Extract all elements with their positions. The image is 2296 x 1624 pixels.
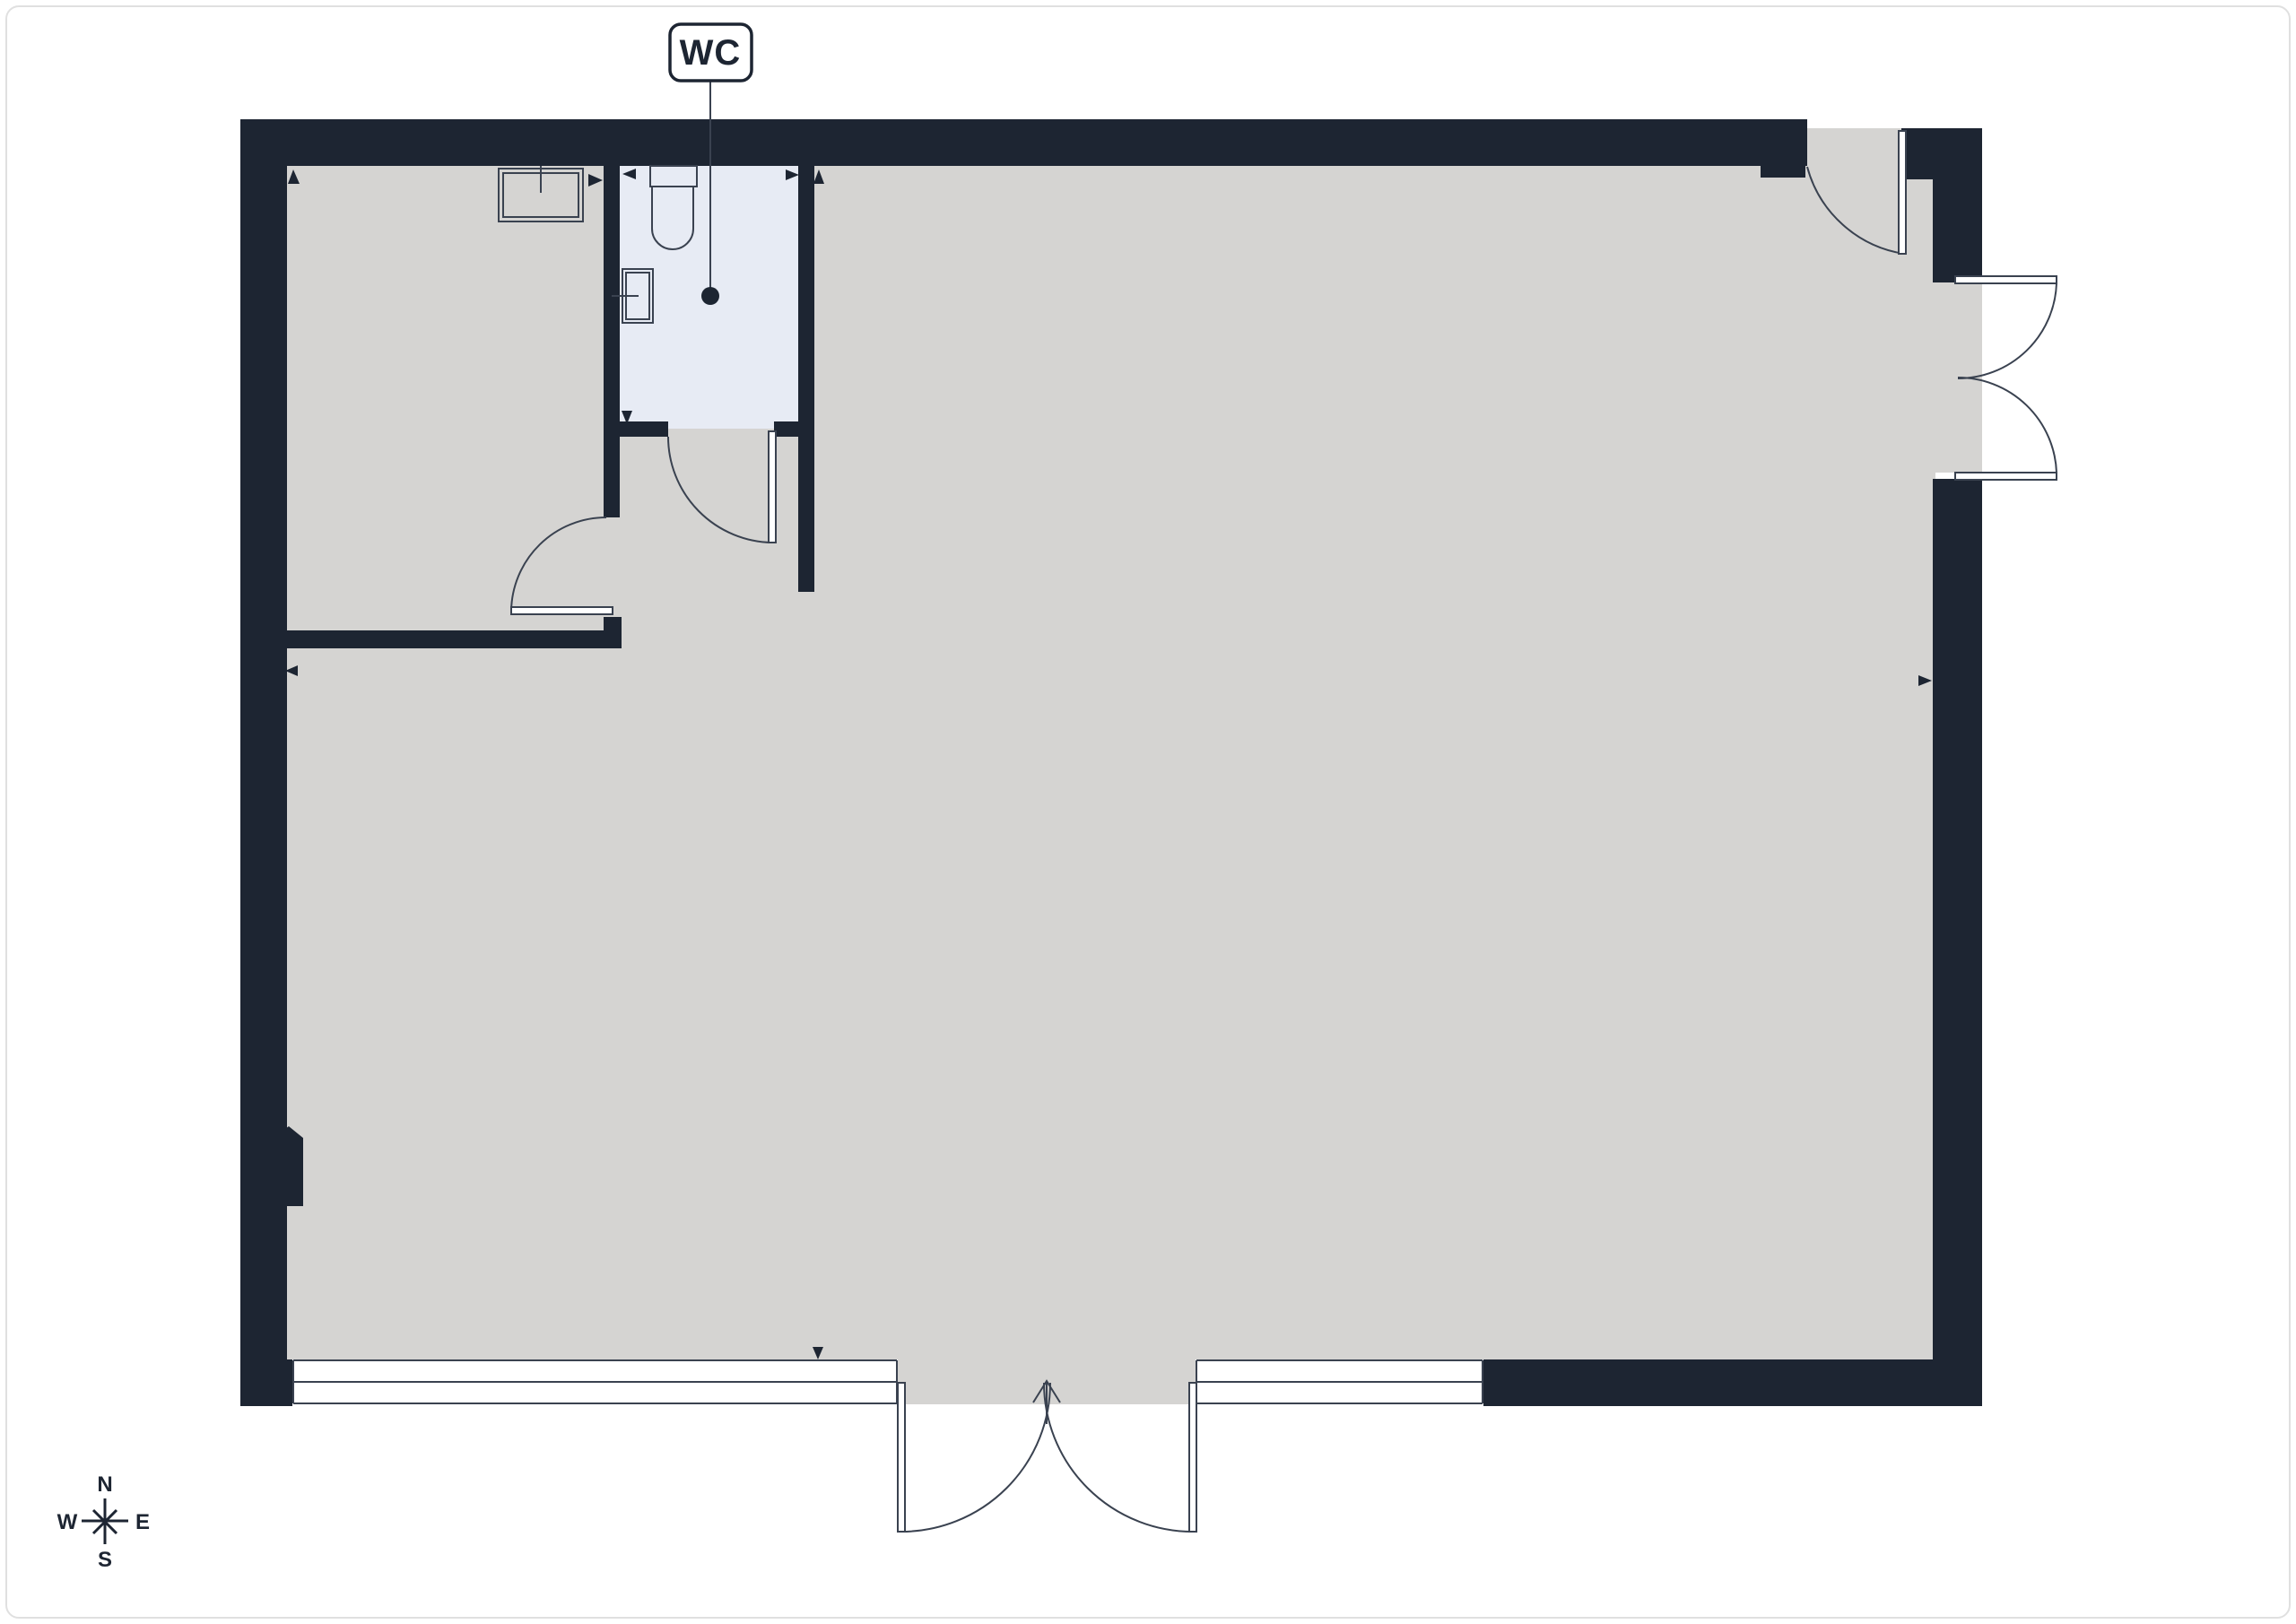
floor-plan-page: WC N E S W [0, 0, 2296, 1624]
wall-wc-bottom-left-seg [605, 421, 668, 437]
door-leaf [511, 607, 613, 614]
wall-right-lower [1933, 479, 1982, 1406]
wall-top-door-jamb-step [1761, 166, 1805, 178]
door-leaf-bottom [1955, 473, 2057, 480]
wall-right-upper [1933, 179, 1982, 282]
wall-top-right-corner-block [1901, 128, 1982, 179]
top-right-door-opening-floor [1807, 128, 1901, 168]
wall-wc-bottom-right-seg [774, 421, 798, 437]
wc-room-label: WC [670, 24, 752, 81]
wall-bottom-left-corner [240, 1359, 292, 1406]
compass-north-label: N [97, 1472, 112, 1497]
floor-plan-canvas: WC N E S W [0, 0, 2296, 1624]
bottom-left-window [292, 1359, 898, 1404]
ceiling-point-dot [701, 287, 719, 305]
door-leaf [1899, 131, 1906, 254]
wall-room-bottom [287, 630, 622, 648]
door-leaf-right [1189, 1383, 1196, 1532]
door-leaf-left [898, 1383, 905, 1532]
compass-west-label: W [57, 1510, 78, 1534]
wall-top [240, 119, 1807, 166]
label-text: WC [680, 33, 742, 73]
bottom-right-window [1196, 1359, 1483, 1404]
wall-left [240, 119, 287, 1406]
compass-east-label: E [135, 1510, 150, 1534]
compass-south-label: S [98, 1548, 112, 1572]
door-leaf-top [1955, 276, 2057, 283]
wall-wc-right [798, 166, 814, 592]
main-room-floor [287, 166, 1935, 1359]
door-leaf [769, 431, 776, 543]
wall-wc-left [604, 166, 620, 517]
floor-areas [287, 128, 1982, 1404]
wall-bottom-right [1483, 1359, 1982, 1406]
wall-left-pillar [281, 1126, 303, 1206]
